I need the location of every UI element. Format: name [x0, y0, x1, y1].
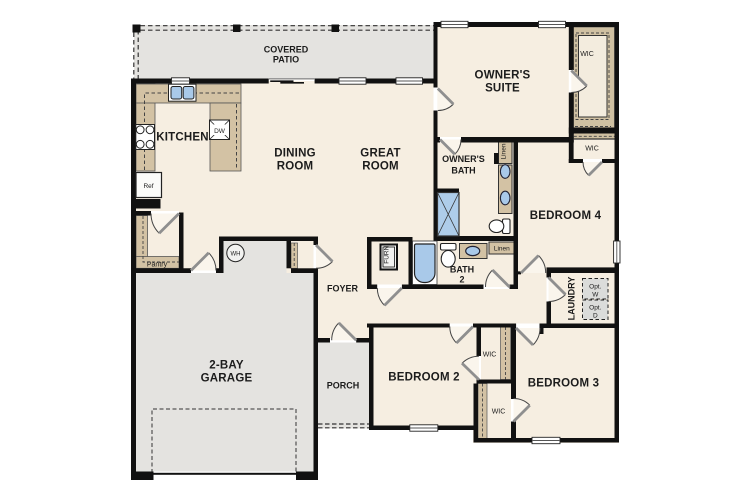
svg-text:Opt.: Opt.: [589, 284, 601, 291]
svg-text:Linen: Linen: [494, 246, 510, 253]
svg-text:Pantry: Pantry: [147, 262, 168, 269]
svg-text:BATH: BATH: [450, 265, 474, 275]
svg-text:BEDROOM 3: BEDROOM 3: [528, 378, 599, 390]
svg-text:WIC: WIC: [492, 409, 506, 416]
svg-text:PORCH: PORCH: [327, 381, 360, 391]
svg-text:KITCHEN: KITCHEN: [156, 132, 209, 144]
svg-text:ROOM: ROOM: [362, 161, 399, 173]
svg-text:Ref: Ref: [143, 183, 153, 190]
svg-text:WIC: WIC: [585, 146, 599, 153]
svg-text:BATH: BATH: [451, 166, 475, 176]
svg-text:WIC: WIC: [580, 51, 594, 58]
svg-text:COVERED: COVERED: [264, 45, 309, 55]
svg-text:2-BAY: 2-BAY: [209, 360, 244, 372]
svg-text:WH: WH: [231, 252, 241, 258]
svg-text:SUITE: SUITE: [485, 83, 520, 95]
svg-text:Opt.: Opt.: [589, 305, 601, 312]
svg-text:LAUNDRY: LAUNDRY: [567, 277, 577, 321]
svg-text:DINING: DINING: [274, 148, 315, 160]
svg-text:OWNER'S: OWNER'S: [442, 154, 485, 164]
svg-text:WIC: WIC: [483, 352, 497, 359]
svg-text:FOYER: FOYER: [327, 284, 359, 294]
svg-text:GARAGE: GARAGE: [201, 373, 253, 385]
svg-text:ROOM: ROOM: [277, 161, 314, 173]
svg-text:Linen: Linen: [500, 143, 507, 159]
svg-text:DW: DW: [214, 128, 226, 135]
svg-text:FURN: FURN: [384, 245, 391, 263]
svg-text:D: D: [593, 313, 598, 320]
svg-text:BEDROOM 4: BEDROOM 4: [530, 210, 602, 222]
svg-text:GREAT: GREAT: [360, 148, 400, 160]
svg-text:OWNER'S: OWNER'S: [475, 70, 531, 82]
svg-text:BEDROOM 2: BEDROOM 2: [388, 372, 459, 384]
svg-text:W: W: [592, 292, 599, 299]
svg-text:2: 2: [459, 275, 464, 285]
svg-text:PATIO: PATIO: [273, 55, 299, 65]
